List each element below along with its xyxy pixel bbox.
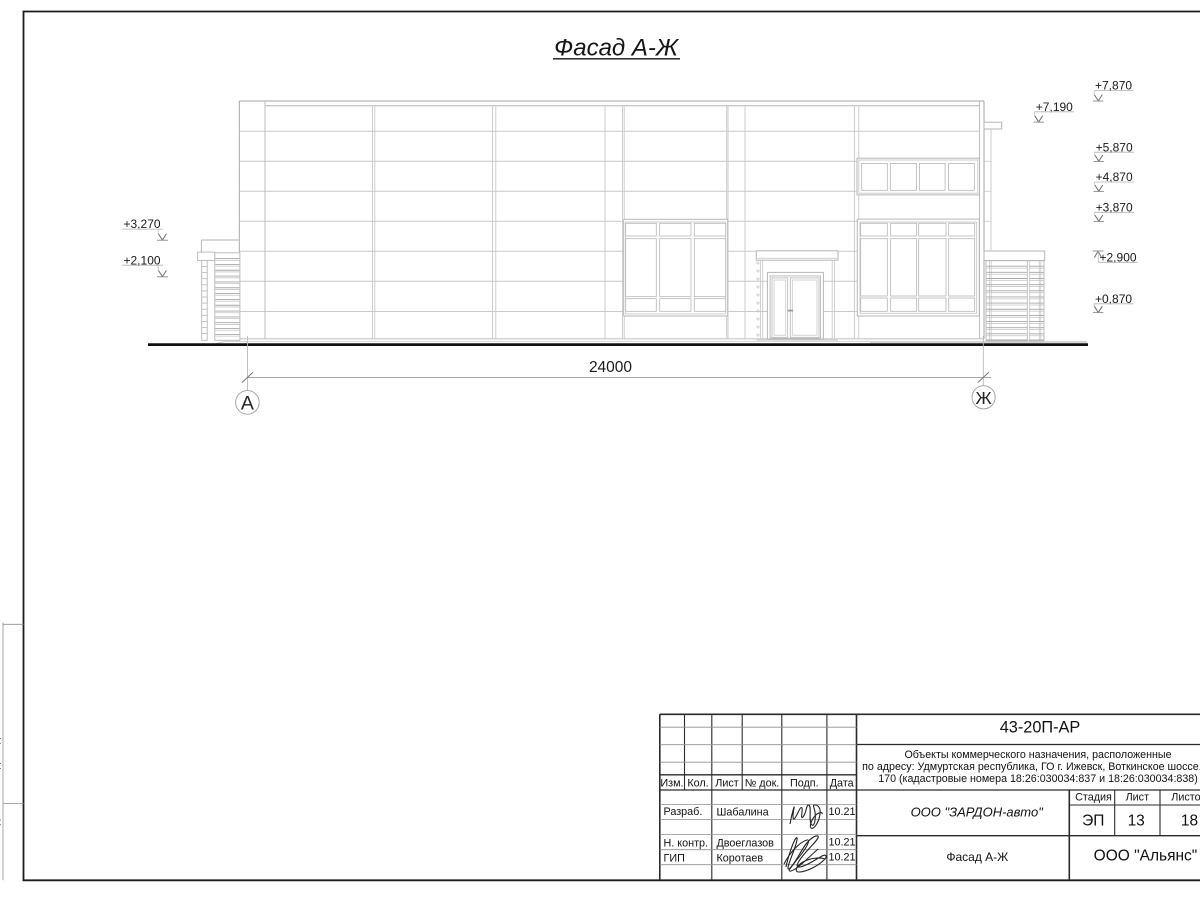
svg-text:А: А	[241, 392, 254, 414]
svg-text:Лист: Лист	[715, 777, 739, 789]
svg-text:Фасад А-Ж: Фасад А-Ж	[554, 35, 680, 62]
svg-text:Объекты коммерческого назначен: Объекты коммерческого назначения, распол…	[904, 749, 1171, 761]
svg-text:Шабалина: Шабалина	[717, 806, 769, 818]
svg-text:Коротаев: Коротаев	[717, 852, 764, 864]
svg-text:10.21: 10.21	[829, 837, 856, 849]
svg-text:170 (кадастровые номера 18:26:: 170 (кадастровые номера 18:26:030034:837…	[878, 773, 1198, 785]
svg-text:10.21: 10.21	[829, 852, 856, 864]
svg-text:18: 18	[1181, 813, 1198, 830]
svg-text:13: 13	[1128, 813, 1145, 830]
svg-text:Изм.: Изм.	[660, 777, 683, 789]
svg-text:10.21: 10.21	[829, 806, 856, 818]
svg-text:Листов: Листов	[1171, 792, 1200, 804]
svg-text:ЭП: ЭП	[1082, 813, 1104, 830]
svg-text:Подп. и дата: Подп. и дата	[0, 722, 2, 781]
svg-text:24000: 24000	[589, 359, 632, 376]
svg-text:Н. контр.: Н. контр.	[664, 837, 709, 849]
svg-text:Ж: Ж	[976, 388, 992, 408]
svg-text:Дата: Дата	[830, 777, 854, 789]
svg-text:по адресу: Удмуртская республи: по адресу: Удмуртская республика, ГО г. …	[862, 761, 1200, 773]
svg-text:Двоеглазов: Двоеглазов	[717, 837, 775, 849]
svg-text:Фасад А-Ж: Фасад А-Ж	[946, 850, 1008, 864]
svg-text:43-20П-АР: 43-20П-АР	[1000, 719, 1080, 737]
svg-text:Разраб.: Разраб.	[664, 806, 703, 818]
svg-text:Стадия: Стадия	[1075, 792, 1112, 804]
svg-text:№ док.: № док.	[745, 777, 780, 789]
svg-text:Лист: Лист	[1126, 792, 1150, 804]
svg-text:Кол.: Кол.	[687, 777, 708, 789]
svg-text:ГИП: ГИП	[664, 852, 685, 864]
svg-text:Инв. № подл.: Инв. № подл.	[0, 811, 2, 873]
svg-text:ООО "Альянс": ООО "Альянс"	[1094, 847, 1198, 864]
svg-text:ООО "ЗАРДОН-авто": ООО "ЗАРДОН-авто"	[911, 805, 1045, 820]
svg-text:Подп.: Подп.	[790, 777, 819, 789]
